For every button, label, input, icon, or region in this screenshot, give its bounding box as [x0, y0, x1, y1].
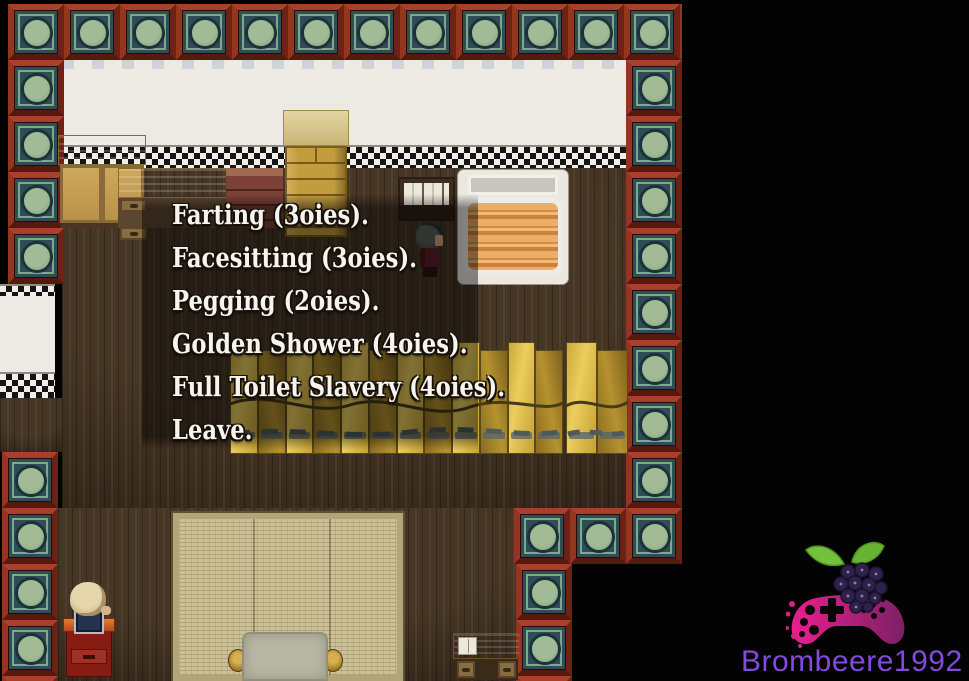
border-tile — [626, 452, 682, 508]
border-tile — [2, 676, 58, 681]
border-tile-strip-left-lower — [2, 452, 58, 681]
border-tile — [400, 4, 456, 60]
low-table — [242, 632, 328, 681]
border-tile — [120, 4, 176, 60]
border-tile — [8, 4, 64, 60]
wall-fringe-tabs — [62, 59, 626, 69]
border-tile — [516, 564, 572, 620]
choice-list: Farting (3oies). Facesitting (3oies). Pe… — [172, 194, 569, 452]
border-tile-strip-top — [8, 4, 682, 60]
border-tile — [456, 4, 512, 60]
choice-option[interactable]: Leave. — [172, 409, 569, 452]
border-tile — [624, 4, 680, 60]
border-tile — [288, 4, 344, 60]
border-tile — [626, 116, 682, 172]
watermark-text: Brombeere1992 — [741, 645, 969, 679]
border-tile — [176, 4, 232, 60]
border-tile-strip-step — [514, 508, 682, 564]
border-tile — [626, 340, 682, 396]
border-tile — [2, 620, 58, 676]
choice-option[interactable]: Facesitting (3oies). — [172, 237, 569, 280]
choice-option[interactable]: Golden Shower (4oies). — [172, 323, 569, 366]
small-desk-with-open-book — [453, 633, 520, 680]
choice-option[interactable]: Full Toilet Slavery (4oies). — [172, 366, 569, 409]
border-tile — [2, 564, 58, 620]
red-writing-desk-group — [63, 580, 115, 677]
red-writing-desk — [66, 630, 112, 677]
gold-screen-panel — [597, 350, 628, 454]
border-tile — [8, 60, 64, 116]
border-tile — [570, 508, 626, 564]
desk-drawer — [71, 649, 107, 664]
cabinet-door — [60, 165, 102, 223]
open-book — [458, 637, 477, 655]
border-tile-strip-right-lower — [516, 564, 572, 681]
border-tile — [232, 4, 288, 60]
desk-drawer — [457, 661, 475, 678]
floor-doorway — [0, 398, 62, 452]
bed-headboard — [468, 175, 558, 195]
border-tile — [8, 116, 64, 172]
left-wall-segment — [0, 284, 55, 398]
game-screen: Farting (3oies). Facesitting (3oies). Pe… — [0, 0, 969, 681]
border-tile — [64, 4, 120, 60]
border-tile — [2, 508, 58, 564]
border-tile — [626, 508, 682, 564]
watermark-logo blackberry-gamepad-icon — [786, 540, 908, 652]
gold-folding-screen-right — [566, 342, 628, 462]
leaf-icon — [806, 546, 844, 565]
choice-option[interactable]: Pegging (2oies). — [172, 280, 569, 323]
border-tile — [516, 620, 572, 676]
choice-option[interactable]: Farting (3oies). — [172, 194, 569, 237]
border-tile — [626, 396, 682, 452]
border-tile-strip-right — [626, 60, 682, 508]
border-tile — [626, 60, 682, 116]
border-tile — [626, 284, 682, 340]
checker-trim — [0, 372, 55, 398]
border-tile — [626, 228, 682, 284]
leaf-icon — [852, 543, 884, 564]
border-tile — [680, 4, 682, 60]
border-tile — [514, 508, 570, 564]
border-tile — [568, 4, 624, 60]
gold-screen-panel — [566, 342, 597, 454]
border-tile — [512, 4, 568, 60]
border-tile — [626, 172, 682, 228]
border-tile — [8, 172, 64, 228]
desk-drawer — [498, 661, 516, 678]
npc-blonde-arm — [101, 606, 111, 615]
border-tile — [2, 452, 58, 508]
border-tile — [344, 4, 400, 60]
checker-trim — [0, 284, 55, 296]
border-tile-strip-left-upper — [8, 60, 64, 284]
border-tile — [516, 676, 572, 681]
border-tile — [8, 228, 64, 284]
